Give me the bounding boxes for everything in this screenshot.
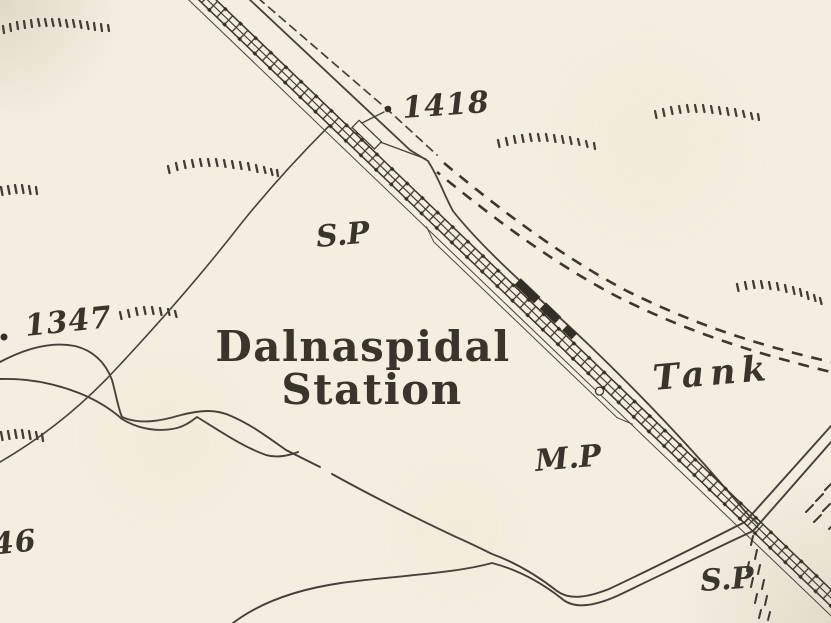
spot-height-label-46: 46 [0, 523, 38, 562]
station-name-line1: Dalnaspidal [215, 322, 510, 371]
station-name-line2: Station [281, 365, 462, 414]
signal-post-label-lower: S.P [699, 560, 756, 599]
map-canvas: Dalnaspidal Station 1418 1347 46 S.P M.P… [0, 0, 831, 623]
mile-post-label: M.P [533, 438, 604, 479]
spot-height-label-1418: 1418 [401, 85, 491, 126]
signal-post-label-upper: S.P [315, 215, 373, 255]
spot-height-dot-1418 [385, 106, 392, 113]
map-drawing: Dalnaspidal Station 1418 1347 46 S.P M.P… [0, 0, 831, 623]
spot-height-dot-1347 [1, 334, 8, 341]
